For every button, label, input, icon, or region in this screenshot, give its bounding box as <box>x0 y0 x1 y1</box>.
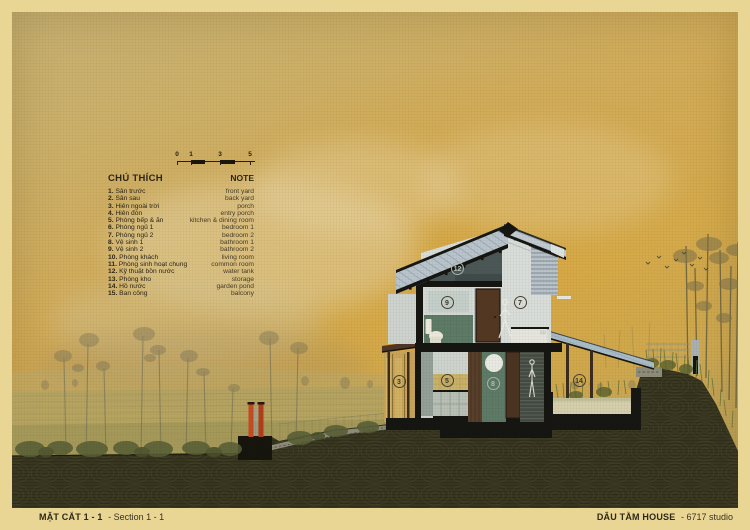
drawing-title-vi: MẶT CẮT 1 - 1 <box>39 512 103 522</box>
legend-title-vi: CHÚ THÍCH <box>108 173 163 184</box>
scale-label-0: 0 <box>173 151 181 158</box>
legend-row: 3. Hiên ngoài trờiporch <box>108 203 254 210</box>
legend-row: 2. Sân sauback yard <box>108 195 254 202</box>
project-name: DÂU TẰM HOUSE <box>597 512 676 522</box>
drawing-title-en: - Section 1 - 1 <box>108 512 164 522</box>
house-section <box>382 222 654 438</box>
legend-row: 10. Phòng kháchliving room <box>108 254 254 261</box>
legend-row: 1. Sân trướcfront yard <box>108 188 254 195</box>
scale-label-5: 5 <box>246 151 254 158</box>
room-marker-bathroom-2: 9 <box>441 296 454 309</box>
room-marker-garden-pond: 14 <box>573 374 586 387</box>
legend-row: 12. Kỹ thuật bồn nướcwater tank <box>108 268 254 275</box>
room-marker-bathroom-1: 8 <box>487 377 500 390</box>
scale-bar-line <box>177 161 255 162</box>
legend-row: 13. Phòng khostorage <box>108 276 254 283</box>
legend-row: 15. Ban côngbalcony <box>108 290 254 297</box>
room-marker-porch: 3 <box>393 375 406 388</box>
garden-pond <box>546 388 641 430</box>
scale-label-1: 1 <box>187 151 195 158</box>
project-title: DÂU TẰM HOUSE - 6717 studio <box>597 512 733 522</box>
legend-row: 7. Phòng ngủ 2bedroom 2 <box>108 232 254 239</box>
room-marker-water-tank: 12 <box>451 262 464 275</box>
legend-title-en: NOTE <box>230 173 254 184</box>
legend-row: 14. Hồ nướcgarden pond <box>108 283 254 290</box>
legend-title: CHÚ THÍCH NOTE <box>108 173 254 184</box>
legend-row: 9. Vệ sinh 2bathroom 2 <box>108 246 254 253</box>
legend-row: 8. Vệ sinh 1bathroom 1 <box>108 239 254 246</box>
studio-name: - 6717 studio <box>681 512 733 522</box>
scale-label-3: 3 <box>216 151 224 158</box>
architectural-sheet: { "title_block": { "left_primary": "MẶT … <box>0 0 750 530</box>
room-marker-bedroom-2: 7 <box>514 296 527 309</box>
shower-area <box>520 352 544 422</box>
legend-row: 6. Phòng ngủ 1bedroom 1 <box>108 224 254 231</box>
west-facade <box>388 294 417 344</box>
room-marker-kitchen: 5 <box>441 374 454 387</box>
legend: CHÚ THÍCH NOTE 1. Sân trướcfront yard 2.… <box>108 173 254 297</box>
scale-bar: 0 1 3 5 <box>176 151 258 167</box>
drawing-title: MẶT CẮT 1 - 1 - Section 1 - 1 <box>39 512 164 522</box>
